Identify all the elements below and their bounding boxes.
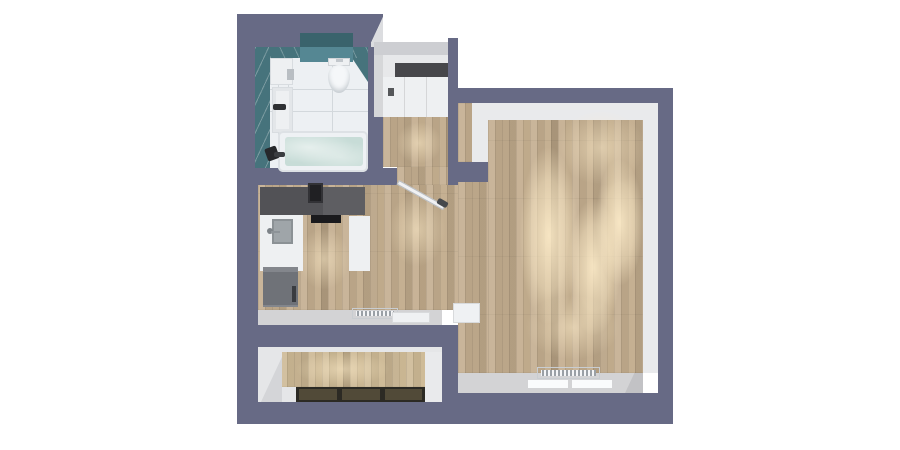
niche-right-face bbox=[472, 103, 488, 162]
balcony-window-panel-2 bbox=[342, 389, 380, 400]
bathtub-faucet-spout bbox=[274, 152, 285, 157]
balcony-left-wall-bevel bbox=[258, 352, 282, 402]
wall-balcony-bottom bbox=[237, 402, 442, 424]
bathtub-water bbox=[285, 137, 363, 166]
floor-plan-canvas bbox=[0, 0, 900, 450]
wardrobe-handle bbox=[388, 88, 394, 96]
light-pool-balcony bbox=[295, 352, 390, 386]
wall-hall-left-face bbox=[374, 55, 383, 117]
toilet-flush-button bbox=[336, 59, 343, 62]
light-pool-hall bbox=[396, 122, 442, 164]
light-pool-living-bottom bbox=[525, 295, 620, 360]
living-bottom-right-bevel bbox=[612, 373, 643, 393]
living-radiator bbox=[537, 367, 600, 379]
light-pool-kitchen bbox=[298, 228, 350, 290]
wardrobe-seam-2 bbox=[426, 77, 427, 117]
paper-holder bbox=[287, 69, 294, 80]
balcony-window-panel-3 bbox=[385, 389, 422, 400]
light-pool-living-top bbox=[556, 110, 646, 185]
wall-living-top bbox=[458, 88, 673, 103]
kitchen-window-sill bbox=[392, 312, 430, 323]
floor-living-left-strip bbox=[458, 182, 488, 373]
kitchen-counter-right bbox=[349, 216, 370, 271]
range-hood bbox=[308, 183, 323, 203]
balcony-window-panel-1 bbox=[299, 389, 337, 400]
niche-wood-panel bbox=[458, 103, 472, 162]
cabinet-handle bbox=[273, 104, 286, 110]
balcony-right-wall-face bbox=[425, 352, 442, 402]
bathroom-tall-cabinet bbox=[272, 87, 293, 133]
wardrobe-top bbox=[395, 63, 448, 77]
wall-living-bottom bbox=[448, 393, 673, 424]
kitchen-faucet-spout bbox=[271, 231, 280, 233]
living-window-sill-left bbox=[528, 380, 568, 388]
cooktop bbox=[311, 215, 341, 223]
wall-kitchen-bottom bbox=[237, 325, 442, 347]
fridge-handle bbox=[292, 286, 296, 302]
wardrobe-body bbox=[383, 77, 448, 117]
cistern-shelf-top bbox=[300, 33, 353, 47]
wall-right bbox=[658, 88, 673, 424]
living-window-sill-right bbox=[572, 380, 612, 388]
wardrobe-seam-1 bbox=[404, 77, 405, 117]
balcony-door-sill bbox=[453, 303, 480, 323]
